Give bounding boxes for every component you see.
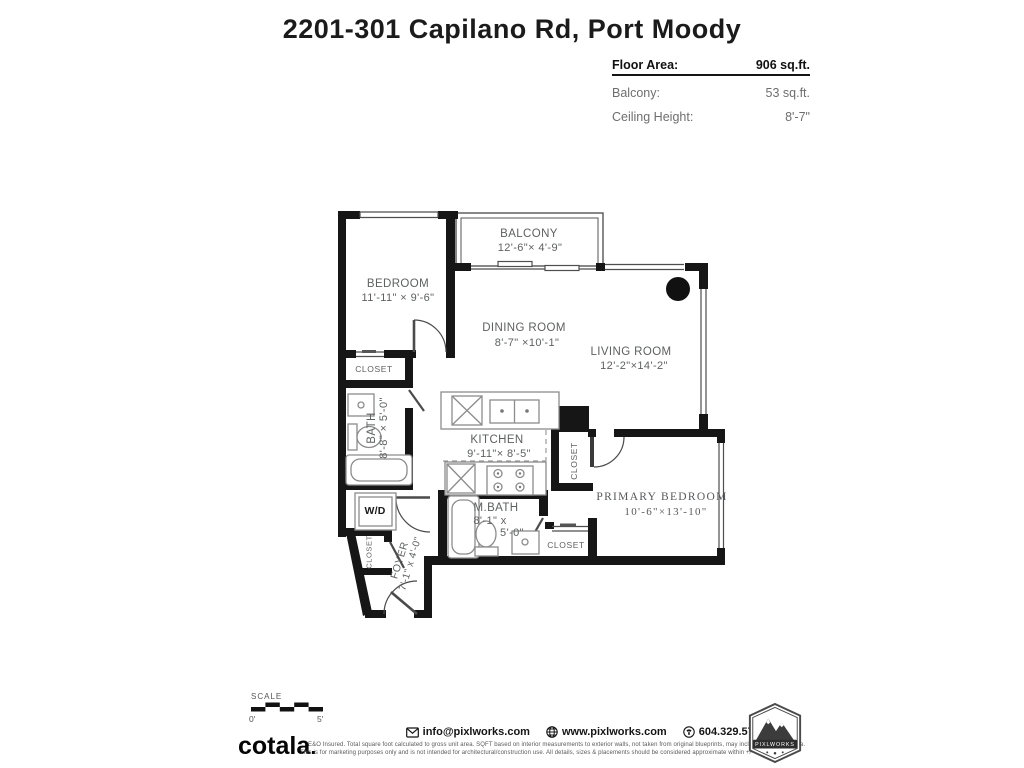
- dining-room-label: DINING ROOM: [482, 322, 566, 334]
- balcony-dims: 12'-6"× 4'-9": [498, 242, 563, 254]
- scale-label: SCALE: [251, 692, 282, 701]
- bedroom-label: BEDROOM: [367, 278, 429, 290]
- balcony-value: 53 sq.ft.: [766, 86, 810, 100]
- mbath-dims-2: 5'-0": [500, 527, 524, 539]
- closet-bedroom-label: CLOSET: [355, 364, 393, 374]
- living-room-label: LIVING ROOM: [590, 346, 671, 358]
- info-box: Floor Area: 906 sq.ft. Balcony: 53 sq.ft…: [612, 58, 810, 124]
- closet-foyer-label: CLOSET: [365, 535, 374, 569]
- balcony-row: Balcony: 53 sq.ft.: [612, 86, 810, 100]
- mbath-dims-1: 8'-1" x: [473, 515, 506, 527]
- bedroom-dims: 11'-11" × 9'-6": [362, 292, 435, 304]
- mbath-label: M.BATH: [474, 502, 519, 514]
- floor-area-row: Floor Area: 906 sq.ft.: [612, 58, 810, 76]
- living-room-dims: 12'-2"×14'-2": [600, 360, 668, 372]
- bath-label: BATH: [366, 397, 378, 459]
- kitchen-island: [441, 392, 559, 429]
- pixlworks-badge: PIXLWORKS: [746, 702, 804, 764]
- floor-area-label: Floor Area:: [612, 58, 678, 72]
- disclaimer-line-2: This is for marketing purposes only and …: [300, 750, 793, 756]
- washer-dryer-label: W/D: [364, 505, 385, 517]
- email-text: info@pixlworks.com: [423, 726, 530, 738]
- balcony-label: BALCONY: [500, 228, 558, 240]
- disclaimer-line-1: E&O Insured. Total square foot calculate…: [308, 742, 805, 748]
- dining-room-dims: 8'-7" ×10'-1": [495, 337, 560, 349]
- primary-bedroom-dims: 10'-6"×13'-10": [624, 506, 707, 518]
- badge-text: PIXLWORKS: [755, 742, 795, 748]
- kitchen-dims: 9'-11"× 8'-5": [467, 448, 531, 460]
- primary-bedroom-label: PRIMARY BEDROOM: [596, 491, 727, 503]
- website-item: www.pixlworks.com: [546, 726, 667, 738]
- globe-icon: [546, 726, 558, 738]
- page-title: 2201-301 Capilano Rd, Port Moody: [0, 14, 1024, 45]
- closet-hall-label: CLOSET: [569, 442, 579, 480]
- column: [666, 277, 690, 301]
- stove-icon: [487, 466, 533, 495]
- floorplan-drawing: [0, 0, 1024, 768]
- envelope-icon: [406, 727, 419, 738]
- ceiling-row: Ceiling Height: 8'-7": [612, 110, 810, 124]
- bath-label-group: BATH 8'-8" × 5'-0": [366, 397, 390, 459]
- kitchen-label: KITCHEN: [470, 434, 523, 446]
- ceiling-value: 8'-7": [785, 110, 810, 124]
- contact-row: info@pixlworks.com www.pixlworks.com 604…: [420, 726, 766, 738]
- website-text: www.pixlworks.com: [562, 726, 667, 738]
- ceiling-label: Ceiling Height:: [612, 110, 693, 124]
- scale-end: 5': [317, 714, 323, 724]
- scale-bar: [251, 701, 323, 713]
- floor-area-value: 906 sq.ft.: [756, 58, 810, 72]
- floorplan-page: 2201-301 Capilano Rd, Port Moody Floor A…: [0, 0, 1024, 768]
- bath-dims: 8'-8" × 5'-0": [378, 397, 390, 459]
- email-item: info@pixlworks.com: [406, 726, 530, 738]
- balcony-label: Balcony:: [612, 86, 660, 100]
- phone-icon: [683, 726, 695, 738]
- cotala-logo: cotala: [238, 732, 315, 761]
- bath-tub-icon: [346, 455, 412, 485]
- scale-start: 0': [249, 714, 255, 724]
- closet-primary-label: CLOSET: [547, 540, 585, 550]
